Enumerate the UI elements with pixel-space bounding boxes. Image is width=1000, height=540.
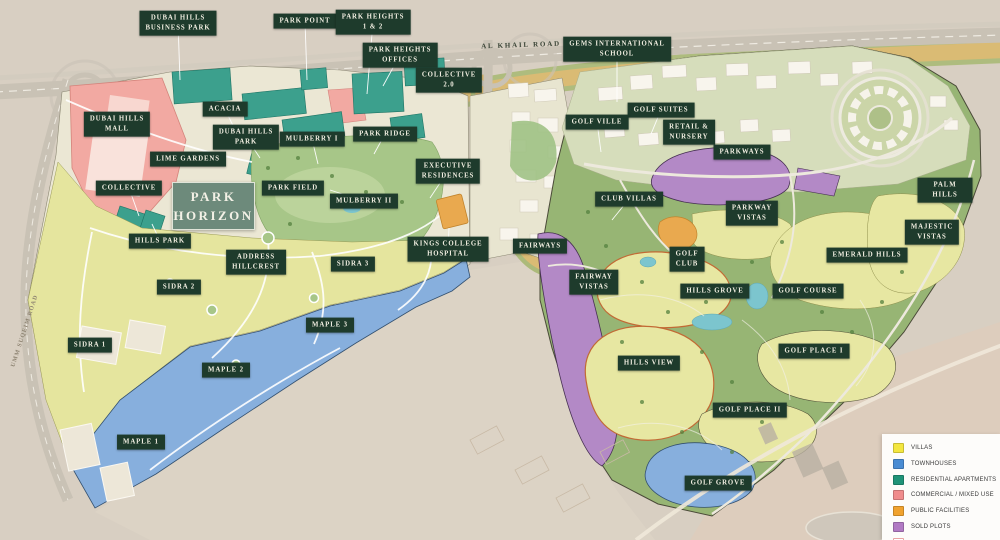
area-label-golf-ville: GOLF VILLE xyxy=(566,115,629,130)
legend-item-1: TOWNHOUSES xyxy=(893,459,1000,469)
area-label-address-hillcrest: ADDRESS HILLCREST xyxy=(226,250,286,275)
area-label-parkways: PARKWAYS xyxy=(714,145,771,160)
area-label-sidra-1: SIDRA 1 xyxy=(68,338,112,353)
legend-swatch xyxy=(893,522,904,532)
map-legend: VILLASTOWNHOUSESRESIDENTIAL APARTMENTSCO… xyxy=(882,434,1000,540)
area-label-fairway-vistas: FAIRWAY VISTAS xyxy=(569,270,618,295)
area-label-park-heights-offices: PARK HEIGHTS OFFICES xyxy=(363,43,438,68)
area-label-dubai-hills-park: DUBAI HILLS PARK xyxy=(213,125,279,150)
legend-label: RESIDENTIAL APARTMENTS xyxy=(911,477,996,483)
legend-label: TOWNHOUSES xyxy=(911,461,957,467)
area-label-gems-international-school: GEMS INTERNATIONAL SCHOOL xyxy=(563,37,671,62)
area-label-park-heights-1-2: PARK HEIGHTS 1 & 2 xyxy=(336,10,411,35)
park-horizon-label: PARK HORIZON xyxy=(172,182,255,230)
area-label-parkway-vistas: PARKWAY VISTAS xyxy=(726,201,778,226)
area-label-palm-hills: PALM HILLS xyxy=(918,178,973,203)
legend-swatch xyxy=(893,506,904,516)
area-label-park-ridge: PARK RIDGE xyxy=(353,127,417,142)
area-label-golf-place-i: GOLF PLACE I xyxy=(779,344,850,359)
area-label-kings-college-hospital: KINGS COLLEGE HOSPITAL xyxy=(408,237,489,262)
area-label-acacia: ACACIA xyxy=(203,102,248,117)
area-label-retail-nursery: RETAIL & NURSERY xyxy=(663,120,715,145)
area-label-mulberry-i: MULBERRY I xyxy=(280,132,345,147)
area-label-park-field: PARK FIELD xyxy=(262,181,324,196)
area-label-golf-grove: GOLF GROVE xyxy=(685,476,752,491)
area-label-collective-2-0: COLLECTIVE 2.0 xyxy=(416,68,482,93)
area-label-emerald-hills: EMERALD HILLS xyxy=(827,248,908,263)
area-label-dubai-hills-business-park: DUBAI HILLS BUSINESS PARK xyxy=(139,11,216,36)
legend-swatch xyxy=(893,490,904,500)
area-label-golf-course: GOLF COURSE xyxy=(773,284,844,299)
area-label-fairways: FAIRWAYS xyxy=(513,239,567,254)
legend-swatch xyxy=(893,459,904,469)
area-label-park-point: PARK POINT xyxy=(274,14,337,29)
area-labels-layer: DUBAI HILLS BUSINESS PARKPARK POINTPARK … xyxy=(0,0,1000,540)
legend-item-5: SOLD PLOTS xyxy=(893,522,1000,532)
area-label-golf-suites: GOLF SUITES xyxy=(628,103,695,118)
area-label-club-villas: CLUB VILLAS xyxy=(595,192,663,207)
area-label-hills-park: HILLS PARK xyxy=(129,234,191,249)
area-label-maple-1: MAPLE 1 xyxy=(117,435,165,450)
legend-label: PUBLIC FACILITIES xyxy=(911,508,969,514)
legend-item-3: COMMERCIAL / MIXED USE xyxy=(893,490,1000,500)
legend-item-2: RESIDENTIAL APARTMENTS xyxy=(893,475,1000,485)
legend-items: VILLASTOWNHOUSESRESIDENTIAL APARTMENTSCO… xyxy=(893,443,1000,540)
legend-label: COMMERCIAL / MIXED USE xyxy=(911,492,994,498)
area-label-hills-grove: HILLS GROVE xyxy=(680,284,749,299)
area-label-sidra-2: SIDRA 2 xyxy=(157,280,201,295)
area-label-sidra-3: SIDRA 3 xyxy=(331,257,375,272)
area-label-lime-gardens: LIME GARDENS xyxy=(150,152,226,167)
area-label-maple-2: MAPLE 2 xyxy=(202,363,250,378)
masterplan-map: DUBAI HILLS BUSINESS PARKPARK POINTPARK … xyxy=(0,0,1000,540)
area-label-golf-place-ii: GOLF PLACE II xyxy=(713,403,787,418)
legend-label: SOLD PLOTS xyxy=(911,524,951,530)
area-label-maple-3: MAPLE 3 xyxy=(306,318,354,333)
legend-item-0: VILLAS xyxy=(893,443,1000,453)
legend-swatch xyxy=(893,443,904,453)
area-label-executive-residences: EXECUTIVE RESIDENCES xyxy=(416,159,480,184)
area-label-golf-club: GOLF CLUB xyxy=(670,247,705,272)
area-label-mulberry-ii: MULBERRY II xyxy=(330,194,398,209)
area-label-majestic-vistas: MAJESTIC VISTAS xyxy=(905,220,959,245)
legend-item-4: PUBLIC FACILITIES xyxy=(893,506,1000,516)
legend-label: VILLAS xyxy=(911,445,933,451)
area-label-hills-view: HILLS VIEW xyxy=(618,356,680,371)
area-label-dubai-hills-mall: DUBAI HILLS MALL xyxy=(84,112,150,137)
legend-swatch xyxy=(893,475,904,485)
area-label-collective: COLLECTIVE xyxy=(96,181,162,196)
